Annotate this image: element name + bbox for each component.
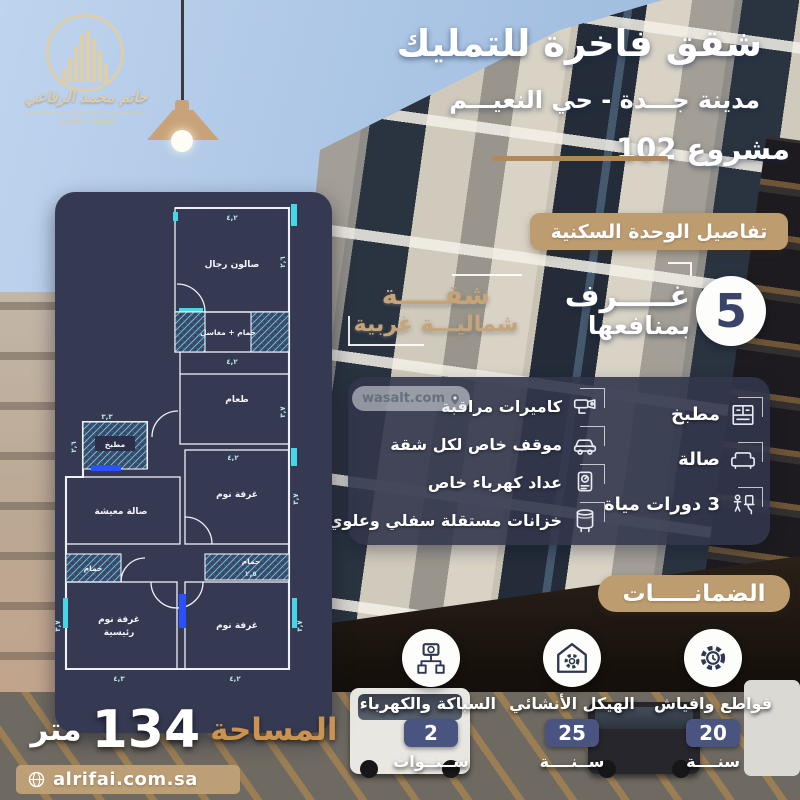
orientation-text: شماليـــة غربية — [346, 312, 526, 338]
kitchen-cabinet-icon — [730, 402, 756, 428]
feature-row: عداد كهرباء خاص — [358, 463, 598, 501]
room-label-bath-sinks: حمام + مغاسل — [200, 328, 256, 337]
plumbing-electric-icon — [402, 629, 460, 687]
electric-meter-icon — [572, 469, 598, 495]
logo-building-bars — [62, 30, 108, 82]
warranty-label: السباكة والكهرباء — [366, 694, 496, 713]
unit-details-banner: تفاصيل الوحدة السكنية — [530, 213, 788, 250]
warranty-value: 20 — [686, 719, 740, 747]
lamp-cord — [181, 0, 184, 112]
warranty-label: الهيكل الأنشائي — [507, 694, 637, 713]
floor-plan-drawing: صالون رجال ٤,٢ ٢,٦ حمام + مغاسل ٤,٢ طعام… — [55, 192, 332, 733]
feature-label: عداد كهرباء خاص — [428, 473, 562, 492]
room-label-master1: غرفة نوم — [98, 615, 140, 625]
room-label-bedroom2: غرفة نوم — [216, 621, 258, 631]
dim-label: ٤,٢ — [226, 358, 238, 366]
dim-label: ٣,٧ — [279, 406, 287, 418]
website-url: alrifai.com.sa — [53, 769, 198, 790]
rooms-word2: بمنافعها — [565, 313, 690, 339]
room-label-bath1: حمام — [84, 564, 103, 573]
logo-tagline: للخدمات العقارية — [28, 112, 144, 125]
feature-label: مطبخ — [671, 404, 720, 425]
decor-line — [492, 156, 668, 161]
warranty-value: 2 — [404, 719, 458, 747]
website-bar: alrifai.com.sa — [16, 765, 240, 794]
logo-company-name: حاتم محمد الرفاعي — [22, 88, 150, 106]
watermark: wasalt.com — [352, 386, 470, 411]
sofa-icon — [730, 447, 756, 473]
warranty-item: قواطع وافياش 20 سنــــة — [648, 629, 778, 771]
warranties-list: قواطع وافياش 20 سنــــة الهيكل الأنشائي … — [366, 629, 778, 771]
decor-bracket — [668, 262, 692, 276]
feature-row: خزانات مستقلة سفلي وعلوي — [358, 501, 598, 539]
warranty-label: قواطع وافياش — [648, 694, 778, 713]
apartment-orientation: شقـــــة شماليـــة غربية — [346, 280, 526, 339]
room-label-bath2: حمام — [242, 557, 261, 566]
cctv-camera-icon — [572, 393, 598, 419]
area-total: المساحة 134 متر — [36, 700, 332, 760]
warranty-unit: ســنــوات — [366, 752, 496, 771]
feature-label: 3 دورات مياة — [604, 494, 720, 515]
house-gear-icon — [543, 629, 601, 687]
decor-line — [348, 344, 424, 346]
logo-emblem-icon — [46, 14, 124, 92]
neighbor-building — [0, 292, 58, 702]
feature-row: 3 دورات مياة — [608, 482, 756, 527]
watermark-text: wasalt.com — [362, 391, 445, 406]
location-pin-icon — [450, 393, 460, 405]
lamp-bulb — [171, 130, 193, 152]
dim-label: ٣,٣ — [101, 413, 113, 421]
rooms-count-caption: غـــــرف بمنافعها — [565, 281, 690, 339]
room-label-master2: رئيسية — [104, 628, 135, 638]
company-logo: حاتم محمد الرفاعي للخدمات العقارية — [22, 12, 150, 144]
dim-label: ٤,٣ — [113, 675, 125, 683]
features-list-right: مطبخ صالة 3 دورات مياة — [608, 392, 756, 527]
feature-row: صالة — [608, 437, 756, 482]
dim-label: ٤,٢ — [227, 454, 239, 462]
warranty-unit: ســنــــة — [507, 752, 637, 771]
warranty-item: السباكة والكهرباء 2 ســنــوات — [366, 629, 496, 771]
feature-label: خزانات مستقلة سفلي وعلوي — [328, 511, 562, 530]
decor-line — [452, 274, 522, 276]
project-label: مشروع — [687, 132, 790, 166]
rooms-count-badge: 5 — [696, 276, 766, 346]
bathroom-icon — [730, 492, 756, 518]
globe-icon — [28, 771, 45, 788]
warranties-banner: الضمانـــــات — [598, 575, 790, 612]
area-value: 134 — [92, 700, 201, 760]
dim-label: ٤,٢ — [229, 675, 241, 683]
warranty-unit: سنــــة — [648, 752, 778, 771]
warranty-value: 25 — [545, 719, 599, 747]
feature-label: صالة — [678, 449, 720, 470]
warranty-item: الهيكل الأنشائي 25 ســنــــة — [507, 629, 637, 771]
dim-label: ٢,٦ — [279, 256, 287, 268]
room-label-kitchen: مطبخ — [105, 440, 126, 449]
gear-icon — [684, 629, 742, 687]
room-label-bedroom: غرفة نوم — [216, 490, 258, 500]
feature-row: مطبخ — [608, 392, 756, 437]
room-label-dining: طعام — [225, 395, 249, 405]
area-label: المساحة — [210, 712, 337, 748]
apartment-word: شقـــــة — [346, 280, 526, 312]
page-title: شقق فاخرة للتمليك — [397, 22, 762, 65]
room-label-living: صالة معيشة — [95, 507, 148, 517]
rooms-word: غـــــرف — [565, 281, 690, 313]
car-parking-icon — [572, 431, 598, 457]
dim-label: ٣,٧ — [292, 493, 300, 505]
poster-canvas: حاتم محمد الرفاعي للخدمات العقارية شقق ف… — [0, 0, 800, 800]
area-unit: متر — [30, 712, 81, 748]
room-label-salon: صالون رجال — [205, 260, 260, 270]
floor-plan-panel: صالون رجال ٤,٢ ٢,٦ حمام + مغاسل ٤,٢ طعام… — [55, 192, 332, 733]
dim-label: ٢,٥ — [245, 570, 256, 578]
dim-label: ٣,٧ — [296, 620, 304, 632]
dim-label: ٤,٢ — [226, 214, 238, 222]
location-subtitle: مدينة جـــدة - حي النعيـــم — [449, 86, 760, 114]
dim-label: ٣,٧ — [55, 620, 62, 632]
feature-label: موقف خاص لكل شقة — [390, 435, 562, 454]
water-tank-icon — [572, 507, 598, 533]
dim-label: ٢,٦ — [70, 441, 78, 453]
feature-row: موقف خاص لكل شقة — [358, 425, 598, 463]
